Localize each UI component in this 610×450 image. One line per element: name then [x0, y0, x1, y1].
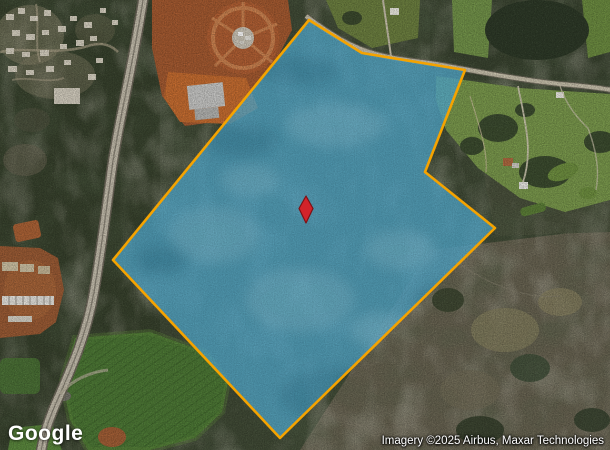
satellite-imagery-canvas	[0, 0, 610, 450]
map-viewport[interactable]: Google Imagery ©2025 Airbus, Maxar Techn…	[0, 0, 610, 450]
imagery-attribution: Imagery ©2025 Airbus, Maxar Technologies	[382, 435, 604, 447]
google-logo[interactable]: Google	[8, 422, 83, 446]
